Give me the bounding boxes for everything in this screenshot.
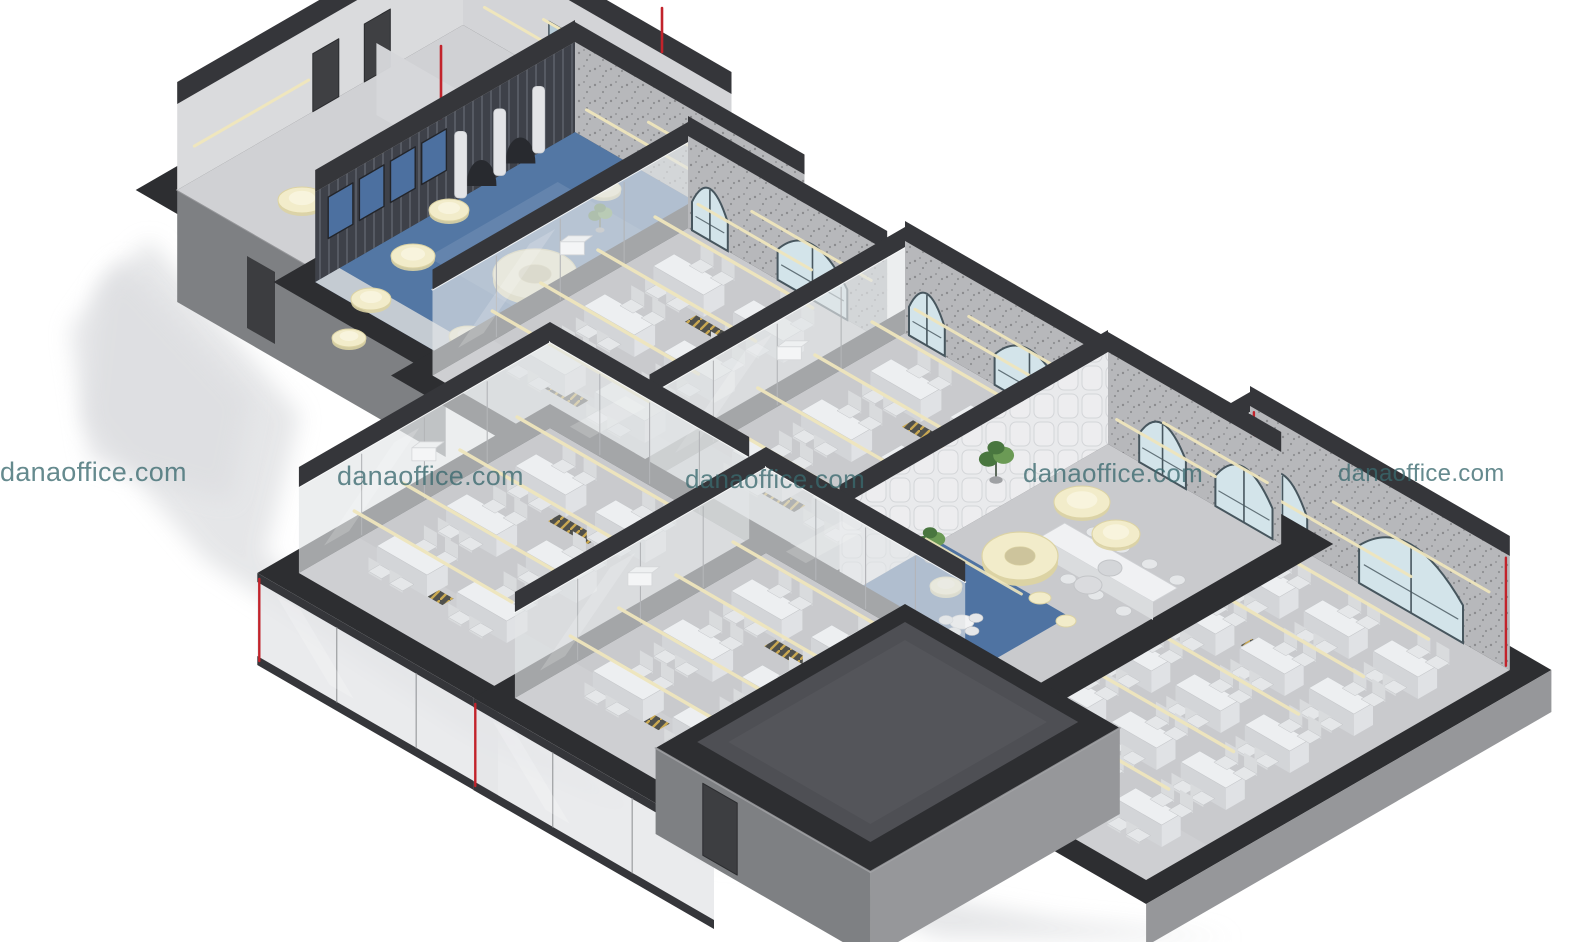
screenshot-canvas: danaoffice.comdanaoffice.comdanaoffice.c… bbox=[0, 0, 1569, 942]
floorplan-render-3d bbox=[0, 0, 1569, 942]
building bbox=[136, 0, 1552, 942]
